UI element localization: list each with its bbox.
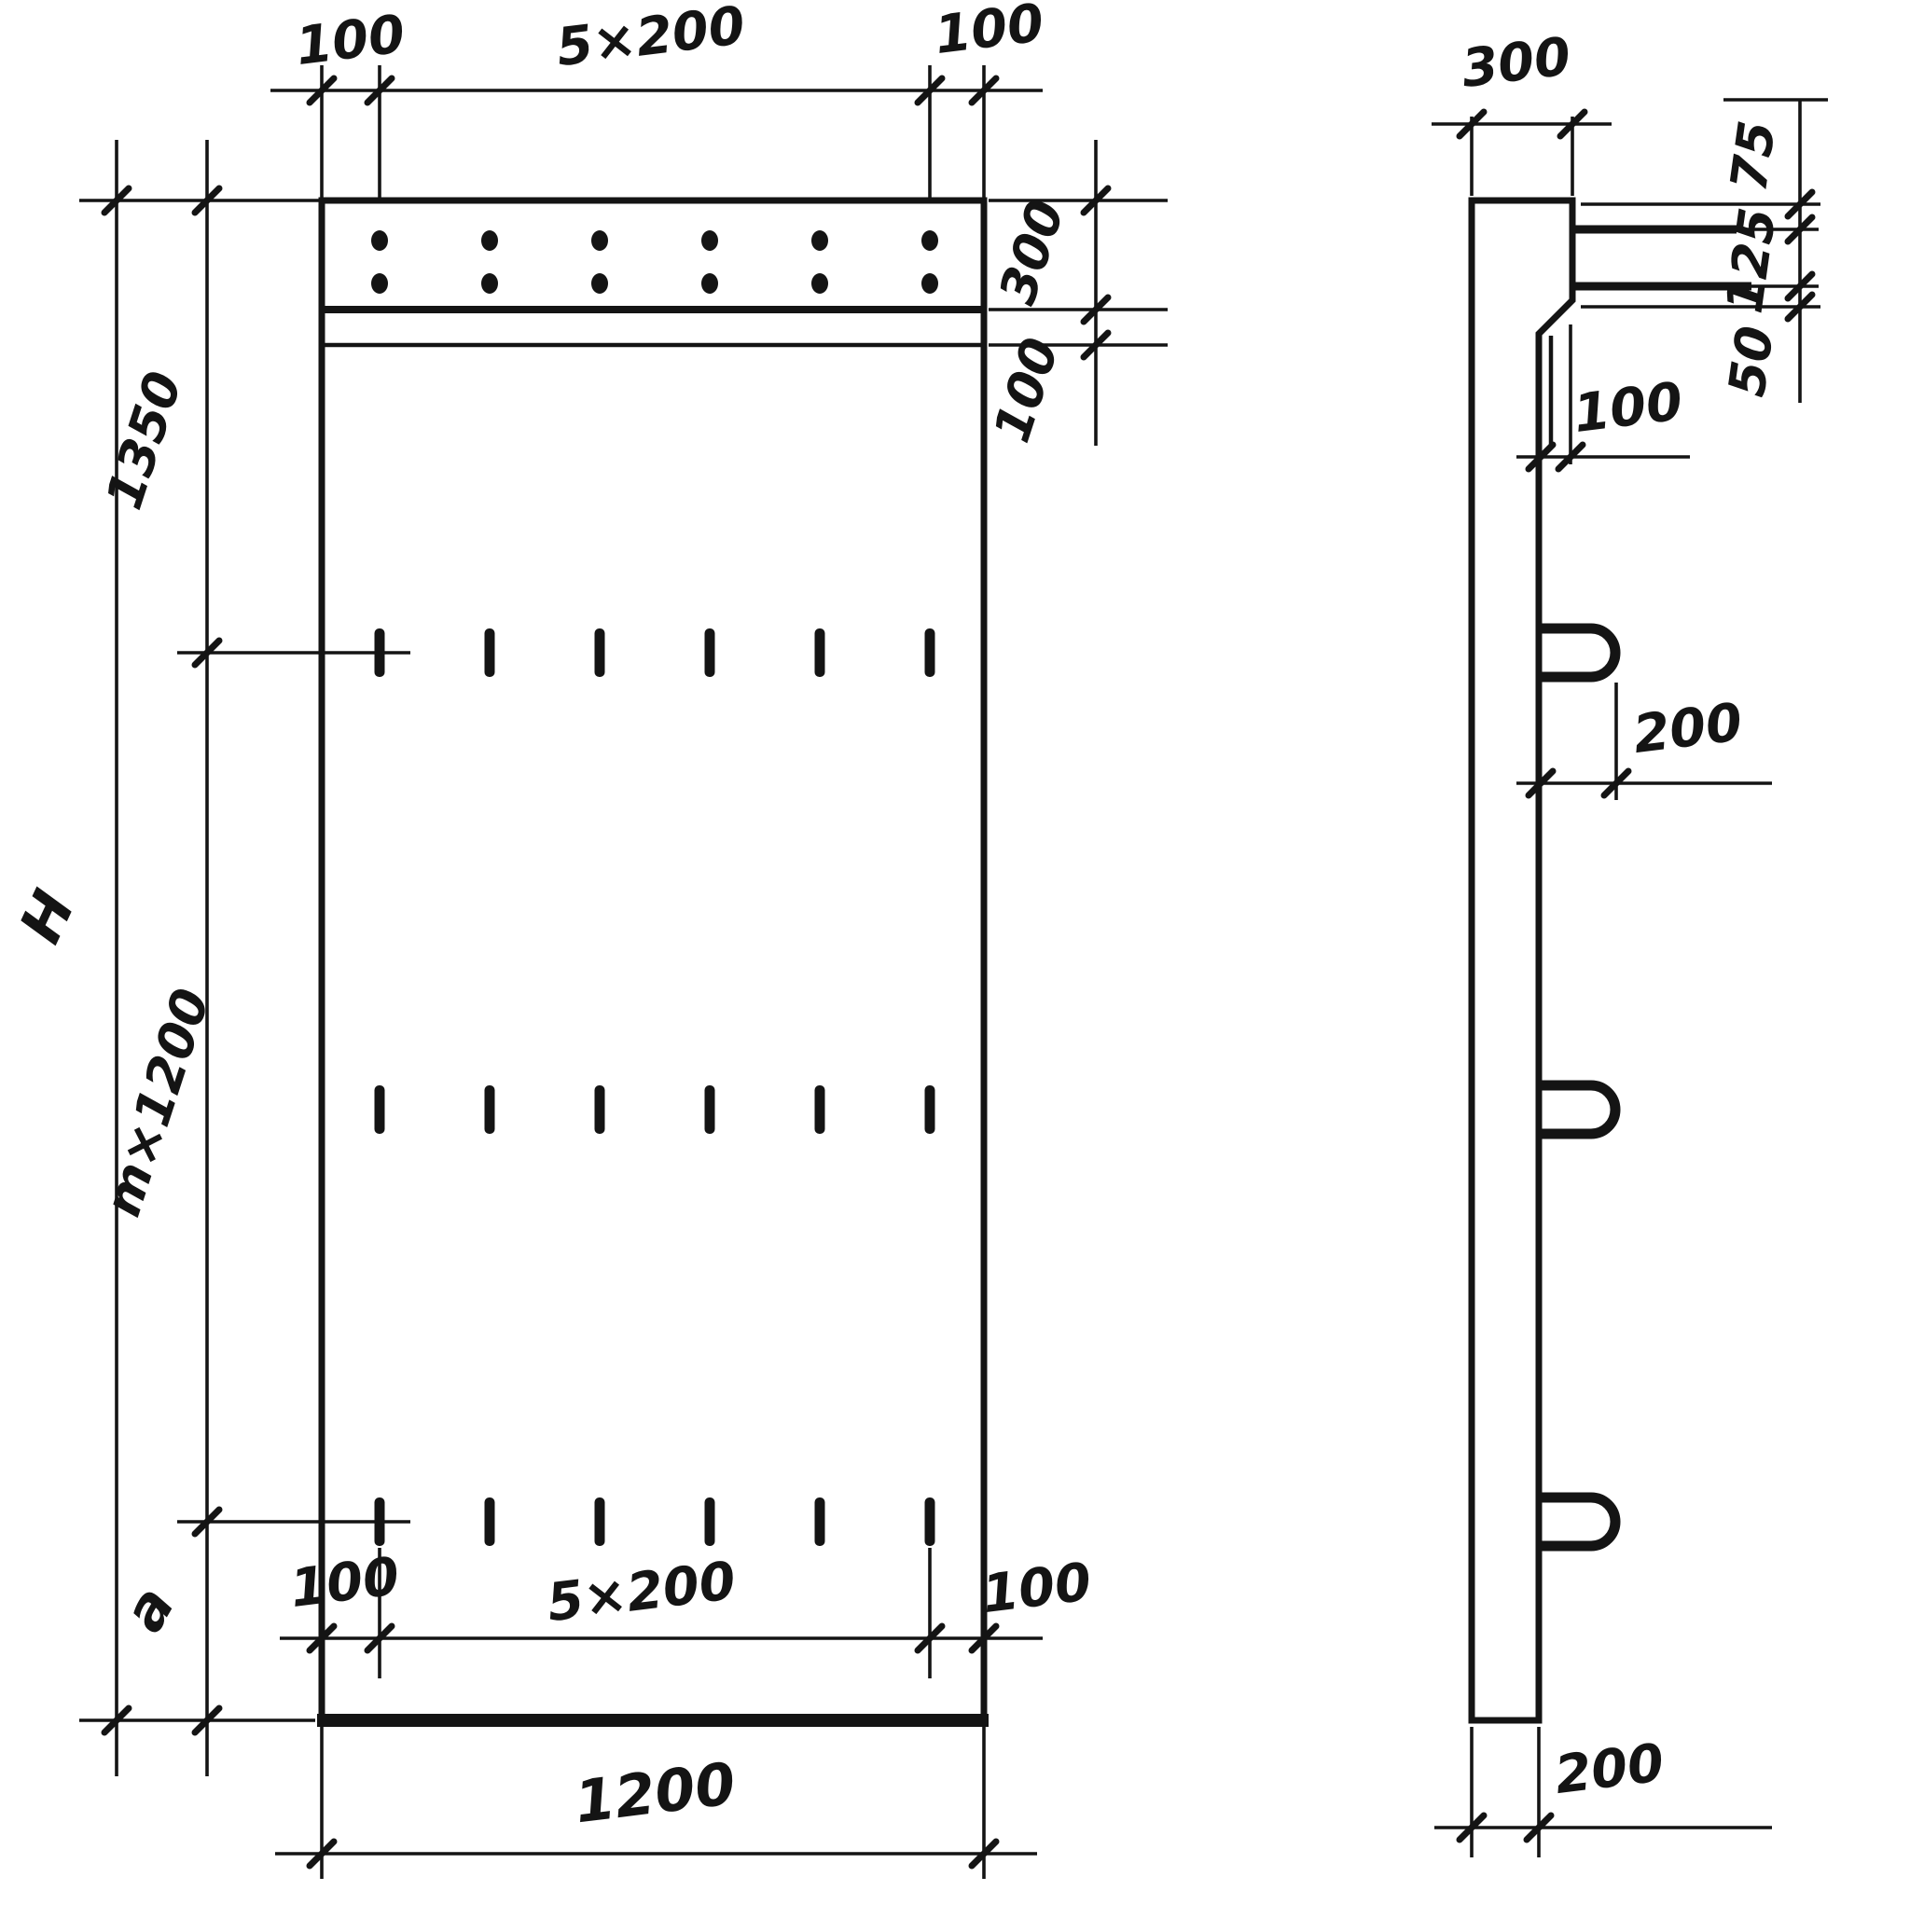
dim-top-zone: 1350 xyxy=(94,365,193,516)
dim-loop-projection: 200 xyxy=(1630,692,1746,766)
side-view: 300 100 xyxy=(1432,26,1828,1857)
front-top-dimension: 100 5×200 100 xyxy=(270,0,1047,198)
dim-lower-offset: 50 xyxy=(1717,323,1785,400)
dim-hook-offset: 100 xyxy=(1571,371,1686,445)
side-top-dimension: 300 xyxy=(1432,26,1612,196)
front-view: 100 5×200 100 300 100 xyxy=(6,0,1168,1879)
side-bottom-dimension: 200 xyxy=(1434,1727,1772,1857)
dim-middle-offset: 125 xyxy=(1715,204,1788,316)
drawing-sheet: 100 5×200 100 300 100 xyxy=(0,0,1910,1932)
front-left-dimensions: 1350 H m×1200 a xyxy=(6,140,410,1776)
dim-top-right-offset: 100 xyxy=(932,0,1047,66)
dim-side-thickness: 300 xyxy=(1459,26,1574,100)
side-right-dimensions: 75 125 50 xyxy=(1715,100,1828,403)
dim-bottom-pitch: 5×200 xyxy=(544,1551,739,1634)
dim-band-height: 300 xyxy=(988,193,1076,311)
dim-band-groove-offset: 100 xyxy=(982,331,1071,449)
dim-upper-offset: 75 xyxy=(1719,117,1787,195)
slot-row-3 xyxy=(375,1497,935,1546)
dim-repeat-zone: m×1200 xyxy=(93,982,222,1223)
technical-drawing: 100 5×200 100 300 100 xyxy=(0,0,1910,1932)
slot-row-1 xyxy=(375,628,935,677)
dim-overall-width: 1200 xyxy=(571,1749,739,1836)
dim-base-thickness: 200 xyxy=(1552,1732,1668,1806)
front-bottom-dimension: 100 5×200 100 xyxy=(280,1546,1095,1678)
slot-row-2 xyxy=(375,1085,935,1134)
dim-overall-height: H xyxy=(6,880,88,953)
dim-top-left-offset: 100 xyxy=(293,4,408,77)
dim-bottom-right-offset: 100 xyxy=(979,1552,1095,1625)
side-loop-dimension: 200 xyxy=(1516,683,1772,800)
side-hook-dimension: 100 xyxy=(1516,371,1690,469)
band-anchor-dots xyxy=(371,230,938,294)
side-loops xyxy=(1541,628,1615,1546)
dim-top-pitch: 5×200 xyxy=(553,0,748,78)
front-width-dimension: 1200 xyxy=(275,1727,1037,1879)
front-band-dimensions: 300 100 xyxy=(982,140,1168,449)
dim-remainder-zone: a xyxy=(109,1575,187,1643)
panel-outline xyxy=(322,200,984,1720)
dim-bottom-left-offset: 100 xyxy=(287,1546,403,1620)
